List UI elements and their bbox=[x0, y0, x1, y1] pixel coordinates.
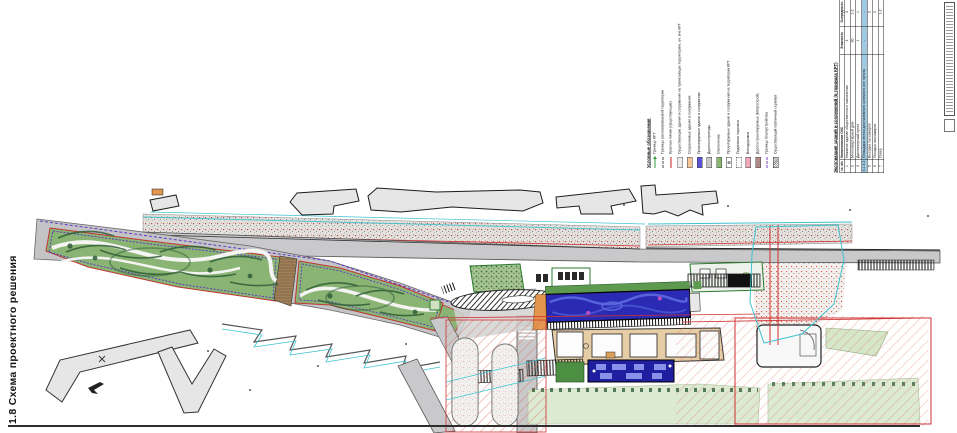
legend-item: Дороги и проезды bbox=[707, 3, 713, 168]
green-plot bbox=[470, 264, 524, 292]
legend-item: Озеленение bbox=[716, 3, 722, 168]
metro-entrance-pavilions bbox=[446, 320, 546, 432]
legend-item: Подземная парковка bbox=[736, 3, 742, 168]
stamp-strip bbox=[944, 2, 955, 116]
legend-item-label: Сохраняемые здания и сооружения bbox=[688, 96, 692, 154]
legend-item-label: Дороги проектируемые (Метрострой) bbox=[756, 93, 760, 154]
legend-swatch-icon: ⊗ bbox=[726, 157, 732, 168]
row-name: Площадка отстоя для наземного конечного … bbox=[862, 55, 868, 160]
legend-item: Границы рассматриваемой территории bbox=[661, 3, 665, 168]
legend-swatch-icon bbox=[697, 157, 703, 168]
legend-item-label: Границы рассматриваемой территории bbox=[661, 90, 665, 154]
site-plan bbox=[0, 0, 957, 433]
legend-swatch-icon bbox=[716, 157, 722, 168]
legend-title: Условные обозначения bbox=[646, 3, 651, 168]
legend-item-label: Границы благоустройства bbox=[765, 112, 769, 154]
stairs bbox=[441, 282, 457, 294]
legend-item-label: Проектируемые здания и сооружения bbox=[698, 92, 702, 154]
north-symbol bbox=[88, 382, 104, 394]
legend-item: Существующий публичный сервитут bbox=[773, 3, 779, 168]
row-floors bbox=[878, 26, 884, 55]
legend: Условные обозначения Границы КРТ Границы… bbox=[646, 3, 801, 168]
legend-swatch-icon bbox=[766, 157, 767, 168]
sheet-title: 1.8 Схема проектного решения bbox=[3, 255, 21, 424]
legend-item-label: Существующие здания и сооружения на прил… bbox=[678, 23, 682, 154]
legend-item: Красные линии (существующие) bbox=[669, 3, 673, 168]
legend-item-label: Подземная парковка bbox=[737, 120, 741, 154]
legend-item-label: Существующий публичный сервитут bbox=[774, 94, 778, 154]
legend-item: Проектируемые здания и сооружения bbox=[697, 3, 703, 168]
stamp-box bbox=[944, 119, 955, 132]
public-building bbox=[757, 325, 821, 367]
legend-item: ⊗ Проектируемые здания и сооружения на т… bbox=[726, 3, 732, 168]
row-stage: 1-2 bbox=[878, 0, 884, 26]
legend-swatch-icon bbox=[654, 157, 655, 168]
legend-item: Существующие здания и сооружения на прил… bbox=[677, 3, 683, 168]
legend-item-label: Красные линии (существующие) bbox=[669, 101, 673, 154]
explication-title: Экспликация зданий и сооружений (в грани… bbox=[833, 3, 838, 173]
legend-item: Велодорожки bbox=[746, 3, 752, 168]
frame-bottom-line bbox=[8, 425, 920, 427]
legend-item-label: Проектируемые здания и сооружения на тер… bbox=[727, 61, 731, 154]
legend-swatch-icon bbox=[736, 157, 742, 168]
row-num: 7 bbox=[878, 159, 884, 173]
drawing-sheet: 1.8 Схема проектного решения Условные об… bbox=[0, 0, 957, 433]
legend-item-label: Велодорожки bbox=[746, 132, 750, 154]
legend-swatch-icon bbox=[707, 157, 713, 168]
legend-swatch-icon bbox=[687, 157, 693, 168]
explication-table: № п/п Наименование ОКС Этажность Очередн… bbox=[840, 0, 884, 173]
chevron-buildings bbox=[46, 330, 226, 413]
legend-item-label: Границы КРТ bbox=[653, 133, 657, 154]
existing-buildings bbox=[150, 185, 718, 216]
legend-item-label: Озеленение bbox=[717, 134, 721, 154]
legend-swatch-icon bbox=[773, 157, 779, 168]
legend-item-label: Дороги и проезды bbox=[707, 125, 711, 154]
legend-swatch-icon bbox=[746, 157, 752, 168]
col-header-stage: Очередность bbox=[840, 0, 845, 26]
underground-parking-building bbox=[588, 360, 674, 382]
legend-item: Границы КРТ bbox=[653, 3, 657, 168]
legend-item: Границы благоустройства bbox=[765, 3, 769, 168]
legend-swatch-icon bbox=[671, 157, 672, 168]
explication-block: Экспликация зданий и сооружений (в грани… bbox=[833, 3, 905, 173]
sheet-title-text: 1.8 Схема проектного решения bbox=[7, 255, 19, 424]
legend-swatch-icon bbox=[677, 157, 683, 168]
row-num: 4.1 4.2 bbox=[862, 159, 868, 173]
legend-swatch-icon bbox=[755, 157, 761, 168]
row-name: Сквер bbox=[878, 55, 884, 160]
legend-item: Дороги проектируемые (Метрострой) bbox=[755, 3, 761, 168]
legend-swatch-icon bbox=[663, 157, 664, 168]
legend-item: Сохраняемые здания и сооружения bbox=[687, 3, 693, 168]
roadside-parking bbox=[858, 260, 934, 270]
explication-row: 7 Сквер 1-2 bbox=[878, 0, 884, 173]
legend-items: Границы КРТ Границы рассматриваемой терр… bbox=[653, 3, 779, 168]
